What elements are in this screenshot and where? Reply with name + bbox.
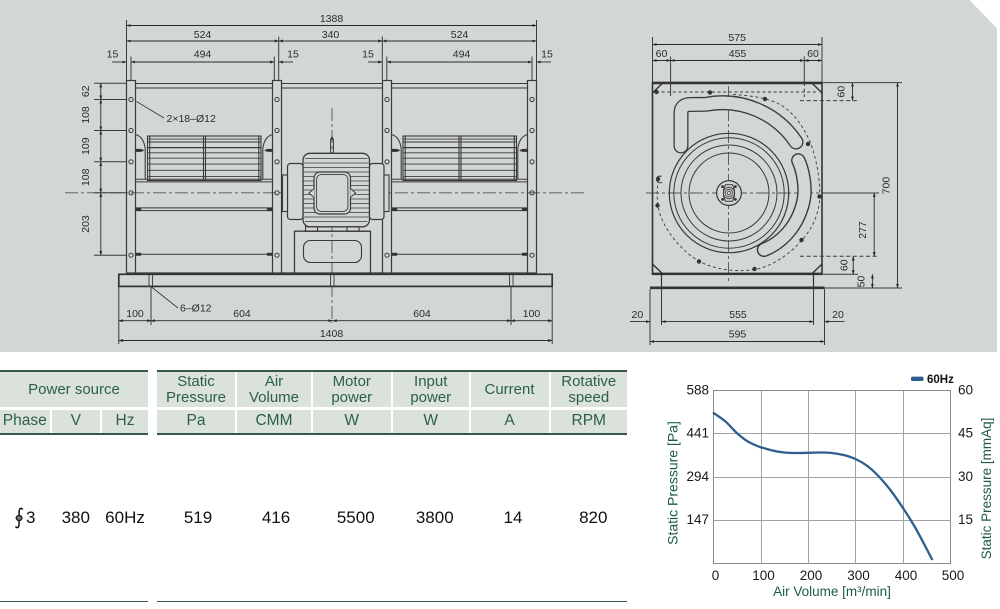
svg-text:400: 400 [895, 568, 918, 583]
svg-text:108: 108 [80, 168, 92, 186]
svg-text:604: 604 [413, 308, 431, 320]
svg-text:524: 524 [194, 29, 212, 41]
svg-text:494: 494 [453, 49, 471, 61]
svg-text:60: 60 [836, 86, 848, 98]
svg-text:340: 340 [322, 29, 340, 41]
svg-text:60: 60 [839, 259, 851, 271]
svg-text:20: 20 [632, 309, 644, 321]
svg-text:30: 30 [958, 469, 973, 484]
svg-text:200: 200 [800, 568, 823, 583]
svg-text:100: 100 [523, 308, 541, 320]
svg-text:500: 500 [942, 568, 965, 583]
svg-text:147: 147 [686, 512, 709, 527]
svg-text:100: 100 [752, 568, 775, 583]
svg-text:Air Volume [m³/min]: Air Volume [m³/min] [773, 584, 891, 599]
svg-text:524: 524 [451, 29, 469, 41]
svg-text:455: 455 [729, 48, 747, 60]
svg-text:700: 700 [881, 177, 893, 195]
svg-text:1388: 1388 [320, 13, 344, 25]
svg-text:15: 15 [287, 49, 299, 61]
svg-text:15: 15 [362, 49, 374, 61]
svg-text:15: 15 [958, 512, 973, 527]
svg-text:2×18–Ø12: 2×18–Ø12 [167, 113, 216, 125]
svg-text:203: 203 [80, 215, 92, 233]
svg-text:441: 441 [686, 426, 709, 441]
svg-text:Static Pressure [Pa]: Static Pressure [Pa] [665, 421, 681, 545]
svg-text:555: 555 [729, 309, 747, 321]
svg-text:45: 45 [958, 426, 973, 441]
svg-text:60: 60 [807, 48, 819, 60]
svg-text:62: 62 [80, 85, 92, 97]
svg-text:494: 494 [194, 49, 212, 61]
svg-text:Static Pressure [mmAq]: Static Pressure [mmAq] [979, 418, 994, 560]
svg-text:6–Ø12: 6–Ø12 [180, 303, 212, 315]
svg-text:50: 50 [856, 276, 868, 288]
svg-text:1408: 1408 [320, 328, 344, 340]
svg-text:20: 20 [832, 309, 844, 321]
svg-text:277: 277 [857, 221, 869, 239]
svg-text:604: 604 [233, 308, 251, 320]
svg-text:595: 595 [729, 329, 747, 341]
svg-text:60: 60 [958, 383, 973, 398]
svg-text:300: 300 [847, 568, 870, 583]
svg-text:0: 0 [712, 568, 720, 583]
svg-text:575: 575 [728, 32, 746, 44]
svg-text:294: 294 [686, 469, 709, 484]
svg-text:100: 100 [126, 308, 144, 320]
svg-text:60Hz: 60Hz [927, 374, 954, 386]
svg-text:15: 15 [107, 49, 119, 61]
svg-text:109: 109 [80, 137, 92, 155]
svg-text:108: 108 [80, 106, 92, 124]
svg-text:588: 588 [686, 383, 709, 398]
svg-text:15: 15 [541, 49, 553, 61]
svg-text:60: 60 [656, 48, 668, 60]
